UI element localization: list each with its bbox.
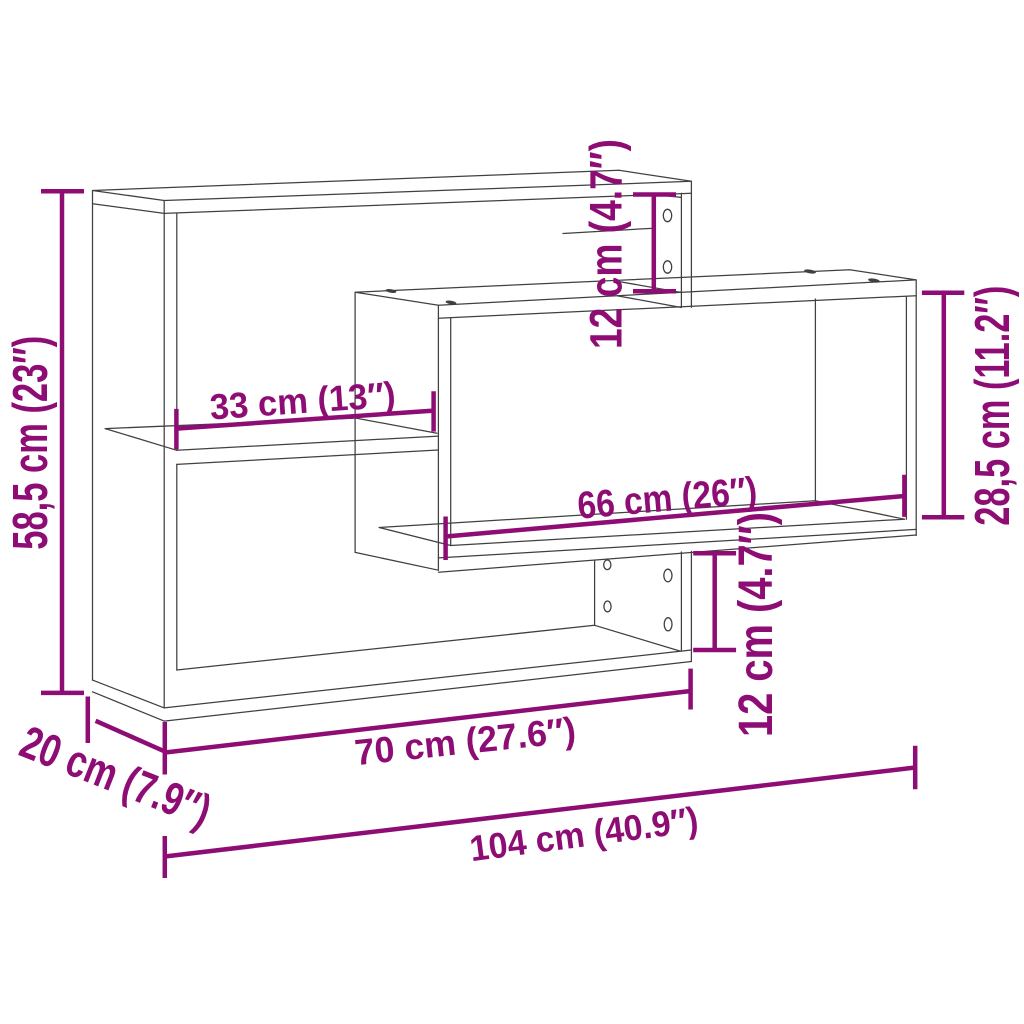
svg-text:28,5 cm (11.2″): 28,5 cm (11.2″) xyxy=(966,286,1020,526)
svg-text:12 cm (4.7″): 12 cm (4.7″) xyxy=(581,139,632,349)
svg-text:12 cm (4.7″): 12 cm (4.7″) xyxy=(730,512,783,737)
svg-text:58,5 cm (23″): 58,5 cm (23″) xyxy=(4,336,58,550)
